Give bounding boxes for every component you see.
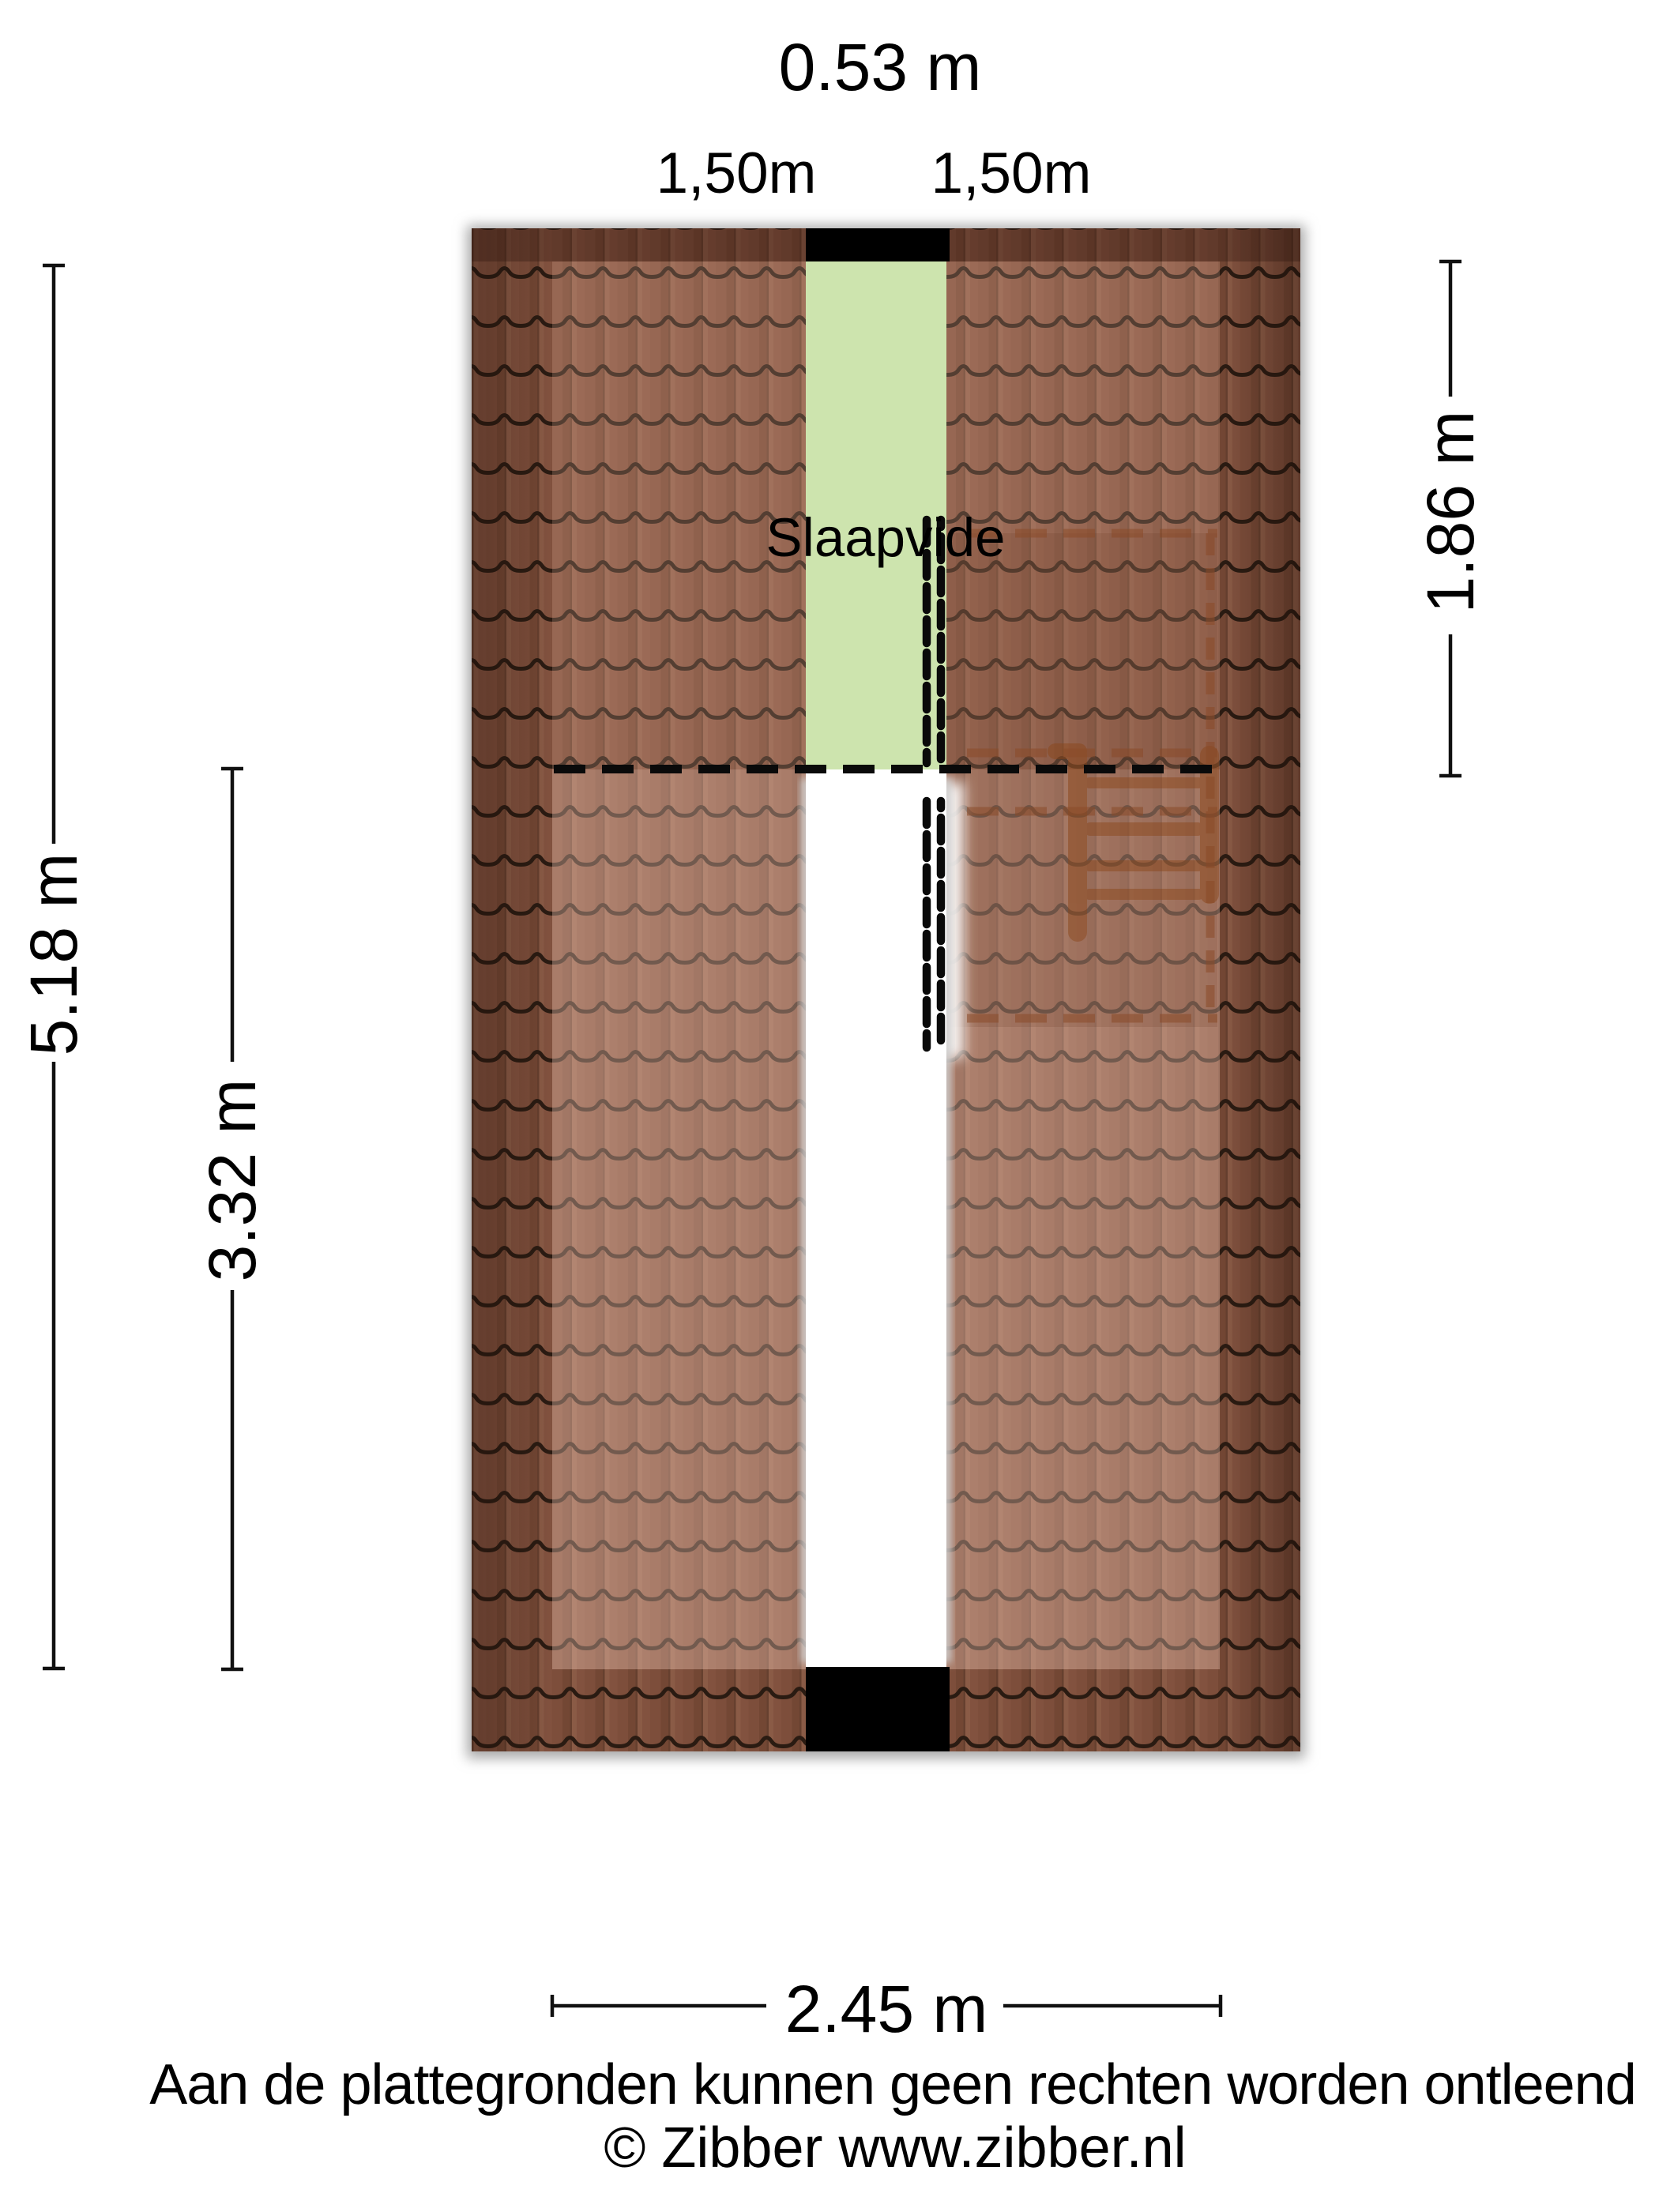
svg-text:Slaapvide: Slaapvide — [766, 507, 1005, 568]
svg-text:© Zibber www.zibber.nl: © Zibber www.zibber.nl — [604, 2116, 1186, 2180]
svg-text:Aan de plattegronden kunnen ge: Aan de plattegronden kunnen geen rechten… — [149, 2053, 1636, 2116]
svg-text:5.18 m: 5.18 m — [17, 853, 91, 1056]
svg-text:1,50m: 1,50m — [656, 141, 817, 205]
svg-text:1,50m: 1,50m — [931, 141, 1092, 205]
svg-text:0.53 m: 0.53 m — [779, 30, 982, 104]
svg-text:1.86 m: 1.86 m — [1413, 411, 1488, 614]
svg-text:3.32 m: 3.32 m — [195, 1079, 269, 1282]
svg-text:2.45 m: 2.45 m — [785, 1972, 988, 2046]
